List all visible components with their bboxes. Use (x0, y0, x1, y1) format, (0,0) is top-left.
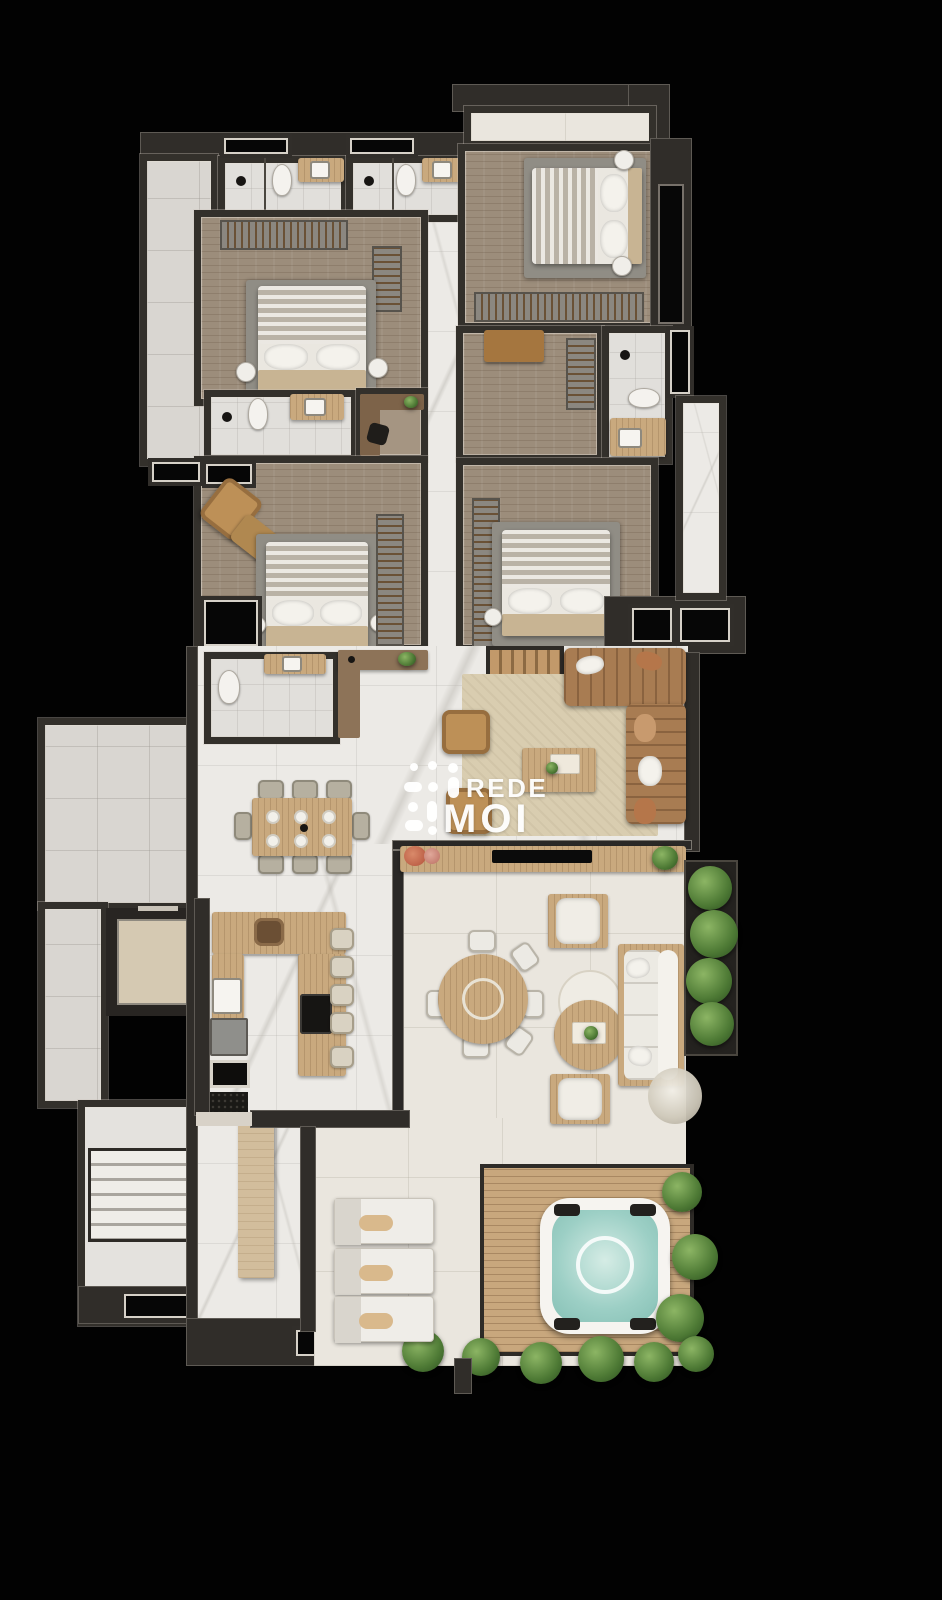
master-east-window (658, 184, 684, 324)
kitchen-sink (254, 918, 284, 946)
logo-bang-dot (428, 826, 437, 835)
logo-i-dot (448, 763, 458, 773)
hot-tub-headrest (554, 1318, 580, 1330)
border-plant (578, 1336, 624, 1382)
planter-plant (690, 1002, 734, 1046)
border-plant (520, 1342, 562, 1384)
terrace-tv (492, 850, 592, 863)
bed-blanket (258, 286, 366, 344)
bathroom-1-window (224, 138, 288, 154)
logo-i-stem (448, 777, 459, 798)
bedroom-1-side-rack (372, 246, 402, 312)
bed-blanket (532, 168, 598, 264)
kitchen-stool (330, 1012, 354, 1034)
lounger-pillow (359, 1265, 393, 1281)
bar-counter-side (338, 650, 360, 738)
hot-tub-seat-ring (576, 1236, 634, 1294)
flower-vase (404, 846, 426, 866)
planter-plant (688, 866, 732, 910)
kitchen-stool (330, 984, 354, 1006)
sofa-pillow (634, 798, 656, 824)
bed-headboard (266, 626, 368, 648)
bedroom-3-bed (502, 530, 610, 636)
logo-dot (428, 761, 437, 770)
bathroom-2-shower-head (364, 176, 374, 186)
bed-pillow (264, 344, 308, 370)
terrace-table-ring (462, 978, 504, 1020)
bed-pillow (600, 220, 628, 258)
hot-tub (540, 1198, 670, 1334)
foyer-east-wall (300, 1126, 316, 1332)
elevator-door-gap (138, 906, 178, 911)
bathroom-2-toilet (396, 164, 416, 196)
dining-chair (326, 780, 352, 800)
common-hall-strip-floor (38, 902, 108, 1108)
bed-blanket (266, 542, 368, 600)
logo-bar (405, 820, 423, 831)
bed-headboard (502, 614, 610, 636)
glass-wall-vertical (392, 850, 404, 1122)
bathroom-3-toilet (248, 398, 268, 430)
bedroom-2-closet-rack (376, 514, 404, 646)
bathroom-4-shower-head (620, 350, 630, 360)
logo-bang-stem (427, 801, 437, 822)
hot-tub-headrest (630, 1204, 656, 1216)
bathroom-1-shower-head (236, 176, 246, 186)
terrace-sofa-back (658, 950, 678, 1080)
prep-sink-unit (212, 978, 242, 1014)
sun-lounger (334, 1248, 434, 1294)
border-plant (678, 1336, 714, 1372)
bar-faucet (348, 656, 355, 663)
living-east-wall (684, 652, 700, 852)
bathroom-1-toilet (272, 164, 292, 196)
dining-chair (258, 854, 284, 874)
flower-vase (424, 848, 440, 864)
deck-plant (656, 1294, 704, 1342)
side-table-plant (584, 1026, 598, 1040)
dining-chair (352, 812, 370, 840)
bathroom-1-sink (310, 161, 330, 179)
master-nightstand (612, 256, 632, 276)
dining-chair (292, 780, 318, 800)
bed-pillow (272, 600, 314, 626)
oven (210, 1060, 250, 1088)
bed-headboard (628, 168, 642, 264)
bed-headboard (258, 370, 366, 392)
kitchen-stool (330, 956, 354, 978)
lounger-pillow (359, 1215, 393, 1231)
plate (294, 834, 308, 848)
border-plant (634, 1342, 674, 1382)
walkin-dresser (484, 330, 544, 362)
bathroom-4-toilet (628, 388, 660, 408)
service-stairs (88, 1148, 200, 1242)
planter-plant (686, 958, 732, 1004)
desk-plant (404, 396, 418, 408)
logo-dot (428, 782, 438, 792)
sofa-pillow (638, 756, 662, 786)
dining-chair (234, 812, 252, 840)
bedroom-1-closet-rack (220, 220, 348, 250)
bed-pillow (600, 174, 628, 212)
bathroom-2-window (350, 138, 414, 154)
bar-plant (398, 652, 416, 666)
hallway-window (152, 462, 200, 482)
dining-chair (326, 854, 352, 874)
lavabo-sink (282, 656, 302, 672)
master-nightstand (614, 150, 634, 170)
plate (322, 834, 336, 848)
deck-post (454, 1358, 472, 1394)
kitchen-stool (330, 1046, 354, 1068)
logo-dot (408, 802, 418, 812)
floor-plan-render: REDE MOI (0, 0, 942, 1600)
watermark: REDE MOI (396, 748, 566, 844)
bedroom-1-bed (258, 286, 366, 392)
bedroom-2-corner-window (204, 600, 258, 646)
terrace-armchair-cushion (558, 1078, 602, 1120)
hot-tub-headrest (630, 1318, 656, 1330)
master-balcony-floor (464, 106, 656, 148)
lounger-backrest (335, 1249, 361, 1295)
walkin-rack (566, 338, 596, 410)
bed-blanket (502, 530, 610, 588)
sun-lounger (334, 1296, 434, 1342)
dining-centerpiece (300, 824, 308, 832)
south-wall-window (632, 608, 672, 642)
plate (322, 810, 336, 824)
sun-lounger (334, 1198, 434, 1244)
lounger-backrest (335, 1297, 361, 1343)
pampas-plant (648, 1068, 702, 1124)
logo-dot (410, 763, 418, 771)
plate (266, 834, 280, 848)
foyer-door (196, 1112, 252, 1126)
planter-plant (690, 910, 738, 958)
bedroom-1-nightstand (368, 358, 388, 378)
common-hall-floor (38, 718, 208, 910)
kitchen-west-wall (194, 898, 210, 1116)
lounger-pillow (359, 1313, 393, 1329)
kitchen-stool (330, 928, 354, 950)
dishwasher (210, 1018, 248, 1056)
bathroom-3-shower-head (222, 412, 232, 422)
bathroom-3-sink (304, 398, 326, 416)
dining-chair (292, 854, 318, 874)
south-wall-window (680, 608, 730, 642)
lounger-backrest (335, 1199, 361, 1245)
terrace-partition-wall (250, 1110, 410, 1128)
bathroom-4-sink (618, 428, 642, 448)
bedroom-3-nightstand (484, 608, 502, 626)
bedroom-2-bed (266, 542, 368, 648)
bed-pillow (320, 600, 362, 626)
sofa-pillow (634, 714, 656, 742)
watermark-line-2: MOI (443, 797, 531, 842)
dining-chair (258, 780, 284, 800)
bedroom-1-nightstand (236, 362, 256, 382)
bed-pillow (316, 344, 360, 370)
plate (266, 810, 280, 824)
lavabo-toilet (218, 670, 240, 704)
terrace-armchair-cushion (556, 898, 600, 944)
bed-pillow (508, 588, 552, 614)
master-closet-rack (474, 292, 644, 322)
bed-pillow (560, 588, 604, 614)
deck-plant (662, 1172, 702, 1212)
bathroom-2-sink (432, 161, 452, 179)
sideboard-plant (652, 846, 678, 870)
plate (294, 810, 308, 824)
master-bed (532, 168, 642, 264)
foyer-cabinet (238, 1122, 274, 1278)
logo-bar (404, 782, 422, 792)
deck-plant (672, 1234, 718, 1280)
terrace-dining-chair (468, 930, 496, 952)
side-terrace-strip (676, 396, 726, 600)
bathroom-4-window (670, 330, 690, 394)
kitchen-cooktop (300, 994, 332, 1034)
hot-tub-headrest (554, 1204, 580, 1216)
